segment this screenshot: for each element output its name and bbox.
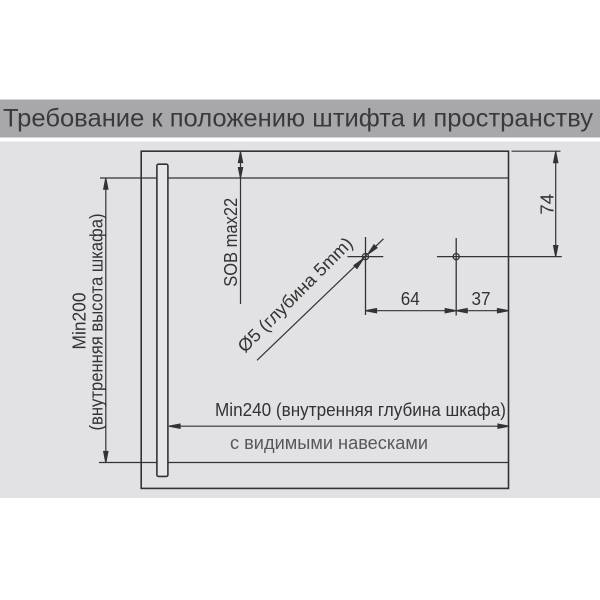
svg-text:с видимыми навесками: с видимыми навесками [230, 433, 428, 453]
svg-text:74: 74 [538, 194, 558, 215]
svg-text:64: 64 [401, 289, 420, 309]
svg-text:Min240 (внутренняя глубина шка: Min240 (внутренняя глубина шкафа) [215, 400, 506, 420]
svg-text:(внутренняя высота шкафа): (внутренняя высота шкафа) [87, 214, 107, 431]
svg-text:Требование к положению штифта: Требование к положению штифта и простран… [3, 105, 594, 133]
svg-text:37: 37 [472, 289, 491, 309]
svg-text:SOB max22: SOB max22 [221, 198, 241, 287]
